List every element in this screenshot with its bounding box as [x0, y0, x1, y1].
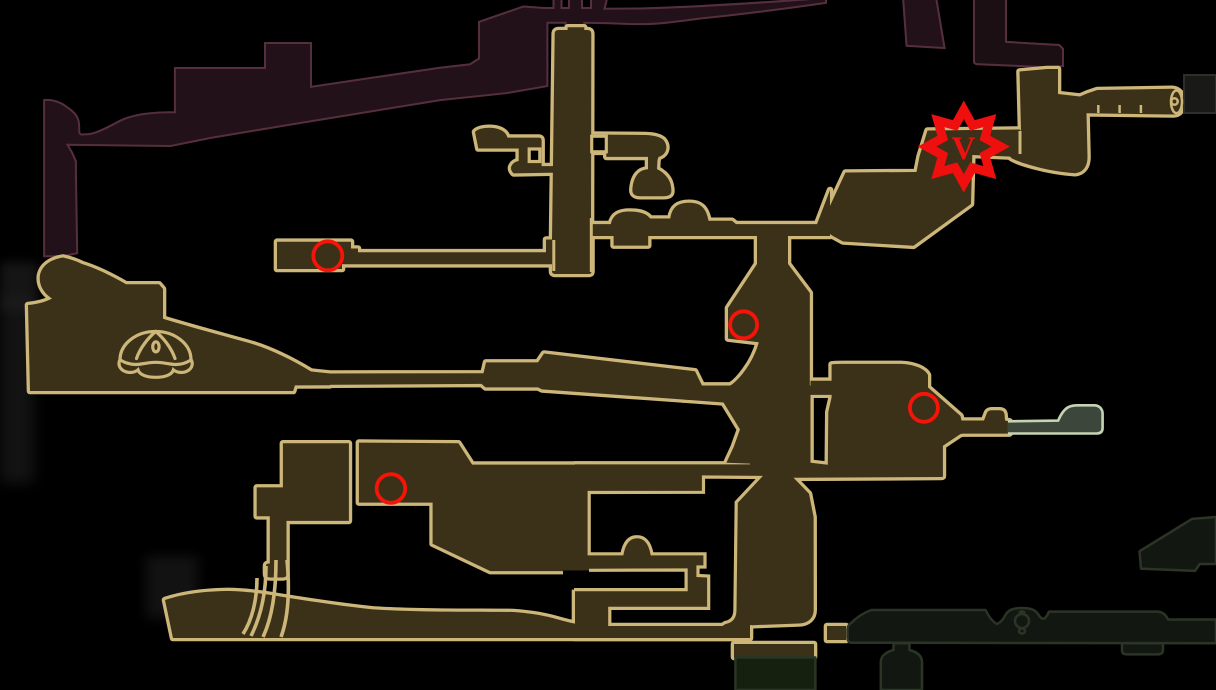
svg-text:V: V	[952, 131, 976, 167]
